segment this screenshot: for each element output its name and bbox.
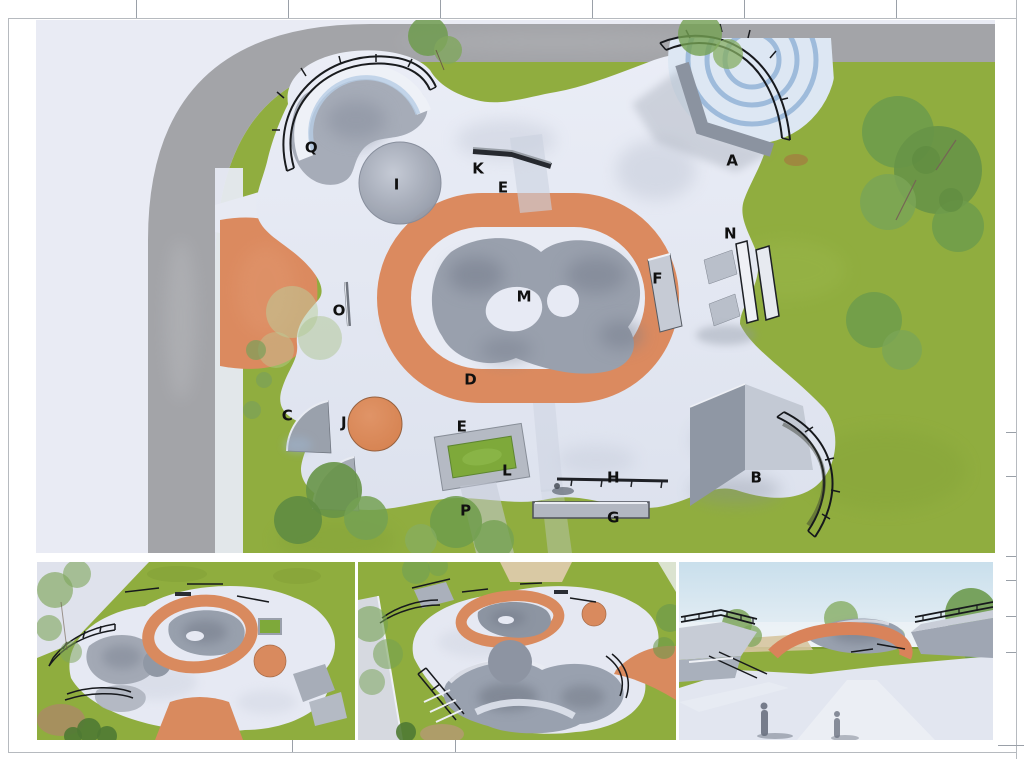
sheet-border-top — [8, 18, 1016, 19]
sheet-tick — [1006, 476, 1016, 477]
sheet-tick — [1006, 580, 1016, 581]
sheet-tick — [1006, 556, 1016, 557]
sheet-tick — [455, 740, 456, 752]
sheet-tick — [1006, 652, 1016, 653]
sheet-tick — [288, 0, 289, 18]
sheet-tick — [1006, 616, 1016, 617]
sheet-tick — [292, 740, 293, 752]
sheet-border-left — [8, 18, 9, 752]
perspective-render-1 — [37, 562, 355, 740]
sheet-tick — [744, 0, 745, 18]
bowl-m — [432, 238, 643, 374]
mound-i — [359, 142, 441, 224]
sheet-tick — [998, 745, 1024, 746]
sheet-tick — [592, 0, 593, 18]
perspective-render-3 — [679, 562, 993, 740]
sheet-tick — [1006, 432, 1016, 433]
grindbox-g — [533, 502, 649, 518]
perspective-render-2 — [358, 562, 676, 740]
sheet-tick — [896, 0, 897, 18]
plan-rendering — [36, 20, 995, 553]
sheet-tick — [440, 0, 441, 18]
sheet-border-right — [1016, 0, 1017, 759]
circle-j — [348, 397, 402, 451]
skatepark-plan-view: QIKEANFMODCJELPHGB — [36, 20, 995, 553]
sheet-border-bottom — [8, 752, 1016, 753]
sheet-tick — [136, 0, 137, 18]
